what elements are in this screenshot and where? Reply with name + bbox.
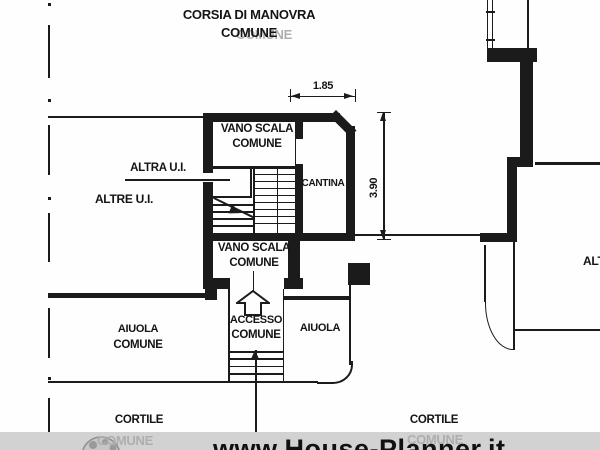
wall-pillar [348, 263, 370, 285]
interior-wall [213, 166, 301, 169]
wall [535, 162, 600, 165]
room-label-aiuola-left-line1: AIUOLA [111, 323, 165, 335]
wall [515, 329, 600, 331]
wall [203, 113, 340, 122]
dimension-text-390: 3.90 [368, 178, 380, 198]
door-leaf [513, 242, 515, 350]
room-label-cortile-right: CORTILE [407, 414, 461, 427]
boundary-rounded-corner [317, 361, 353, 384]
wall [48, 116, 203, 119]
accesso-entry-arrow-icon [236, 290, 270, 316]
wall [203, 182, 213, 240]
window-line [527, 0, 529, 50]
property-line-dash [48, 25, 50, 78]
window-line [492, 0, 494, 55]
dimension-line [383, 113, 385, 239]
leader-line-altra-ui [125, 179, 230, 181]
room-label-vano-scala-lower-line1: VANO SCALA [209, 242, 299, 255]
boundary-line [349, 285, 351, 365]
wall [346, 126, 355, 240]
room-label-altre-ui: ALTRE U.I. [86, 193, 162, 206]
interior-wall [250, 166, 252, 198]
window-tick [486, 11, 495, 13]
stair-tread [255, 223, 300, 225]
wall [507, 157, 533, 167]
property-line-dash [48, 308, 50, 358]
wall [284, 296, 350, 300]
room-label-aiuola-left-line2: COMUNE [105, 339, 171, 352]
dimension-text-185: 1.85 [299, 80, 347, 92]
dimension-tick [355, 89, 357, 102]
room-label-altra-ui: ALTRA U.I. [124, 162, 192, 175]
property-line-dash [48, 3, 51, 6]
wall [487, 48, 537, 62]
room-label-cortile-left: CORTILE [112, 414, 166, 427]
wall [284, 278, 303, 289]
door-swing-arc [485, 302, 514, 350]
room-label-corsia-line1: CORSIA DI MANOVRA [182, 8, 316, 22]
wall [520, 62, 533, 160]
wall [507, 167, 517, 242]
stair-tread [213, 225, 253, 227]
window-tick [486, 39, 495, 41]
room-label-vano-scala-lower-line2: COMUNE [209, 257, 299, 270]
stair-direction-arrow [228, 204, 241, 217]
dimension-arrow-left [291, 93, 300, 99]
stair-tread [255, 188, 300, 190]
stair-tread [255, 202, 300, 204]
room-label-cantina: CANTINA [299, 178, 347, 189]
floor-plan-canvas: COMUNE CORSIA DI MANOVRA COMUNE VANO SCA… [0, 0, 600, 450]
stair-center-line [255, 350, 257, 445]
property-line-dash [48, 99, 51, 102]
room-label-accesso-line2: COMUNE [226, 329, 286, 342]
stair-tread [255, 216, 300, 218]
stair-direction-arrow [251, 350, 259, 359]
stair-tread [255, 181, 300, 183]
room-label-vano-scala-upper-line2: COMUNE [212, 138, 302, 151]
watermark-comune-left: COMUNE [97, 434, 153, 448]
room-label-aiuola-right: AIUOLA [295, 322, 345, 334]
boundary-line [48, 381, 318, 383]
boundary-line [355, 234, 480, 236]
property-line-dash [48, 125, 50, 175]
wall [203, 233, 355, 241]
wall [480, 233, 517, 242]
door-jamb [484, 245, 486, 302]
room-label-vano-scala-upper-line1: VANO SCALA [212, 123, 302, 136]
room-label-accesso-line1: ACCESSO [227, 314, 285, 326]
watermark-site-text: www.House-Planner.it [213, 435, 506, 450]
room-label-altra-ui-right: ALTRA U.I. [583, 255, 600, 268]
stair-tread [255, 174, 300, 176]
stair-tread [255, 209, 300, 211]
stair-tread [255, 195, 300, 197]
wall [48, 293, 208, 298]
dimension-arrow-up [380, 112, 386, 121]
interior-wall [213, 196, 251, 198]
stair-tread [213, 218, 253, 220]
dimension-arrow-right [344, 93, 353, 99]
room-label-corsia-line2: COMUNE [182, 26, 316, 40]
property-line-dash [48, 197, 51, 200]
window-line [487, 0, 489, 55]
property-line-dash [48, 213, 50, 262]
